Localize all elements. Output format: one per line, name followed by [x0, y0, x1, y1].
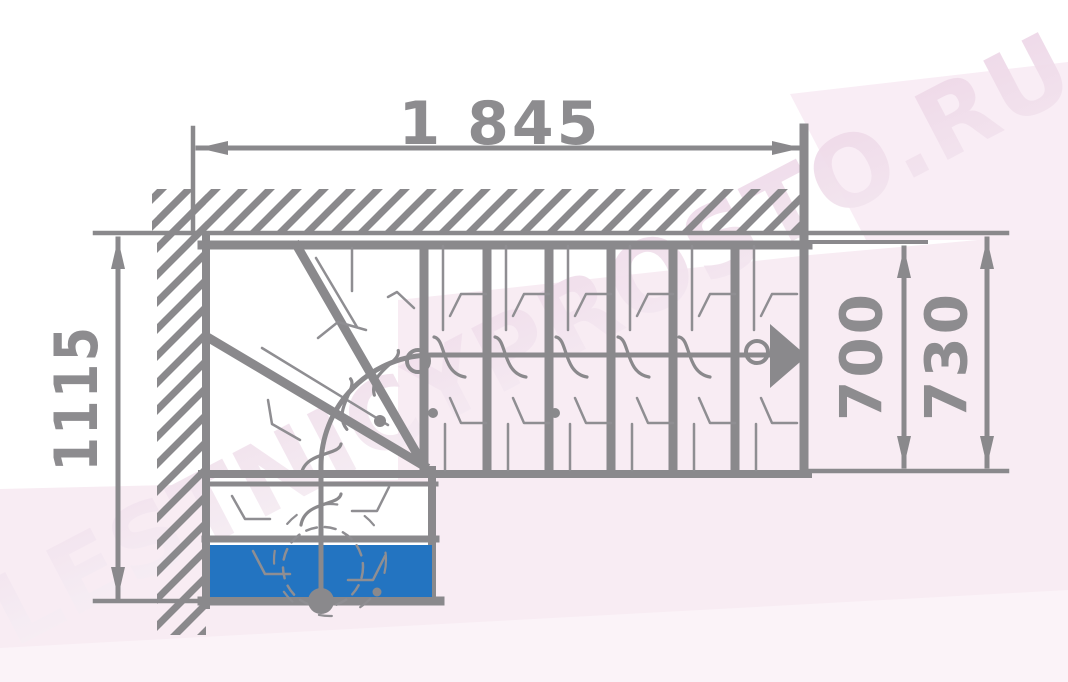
marker-dot — [428, 408, 438, 418]
dim-label-flight-outer: 730 — [912, 291, 980, 421]
dim-label-flight-inner: 700 — [827, 291, 895, 421]
stair-plan-page: LESTNICYPROSTO.RU — [0, 0, 1068, 682]
dim-label-overall-depth: 1115 — [41, 325, 111, 472]
stair-plan-drawing: LESTNICYPROSTO.RU — [0, 0, 1068, 682]
marker-dot — [550, 408, 560, 418]
dim-label-overall-width: 1 845 — [399, 89, 602, 159]
marker-dot — [373, 588, 382, 597]
left-wall-hatch — [157, 189, 206, 635]
walk-line-start-dot — [308, 588, 334, 614]
marker-dot — [374, 415, 386, 427]
top-wall-hatch — [152, 189, 808, 234]
